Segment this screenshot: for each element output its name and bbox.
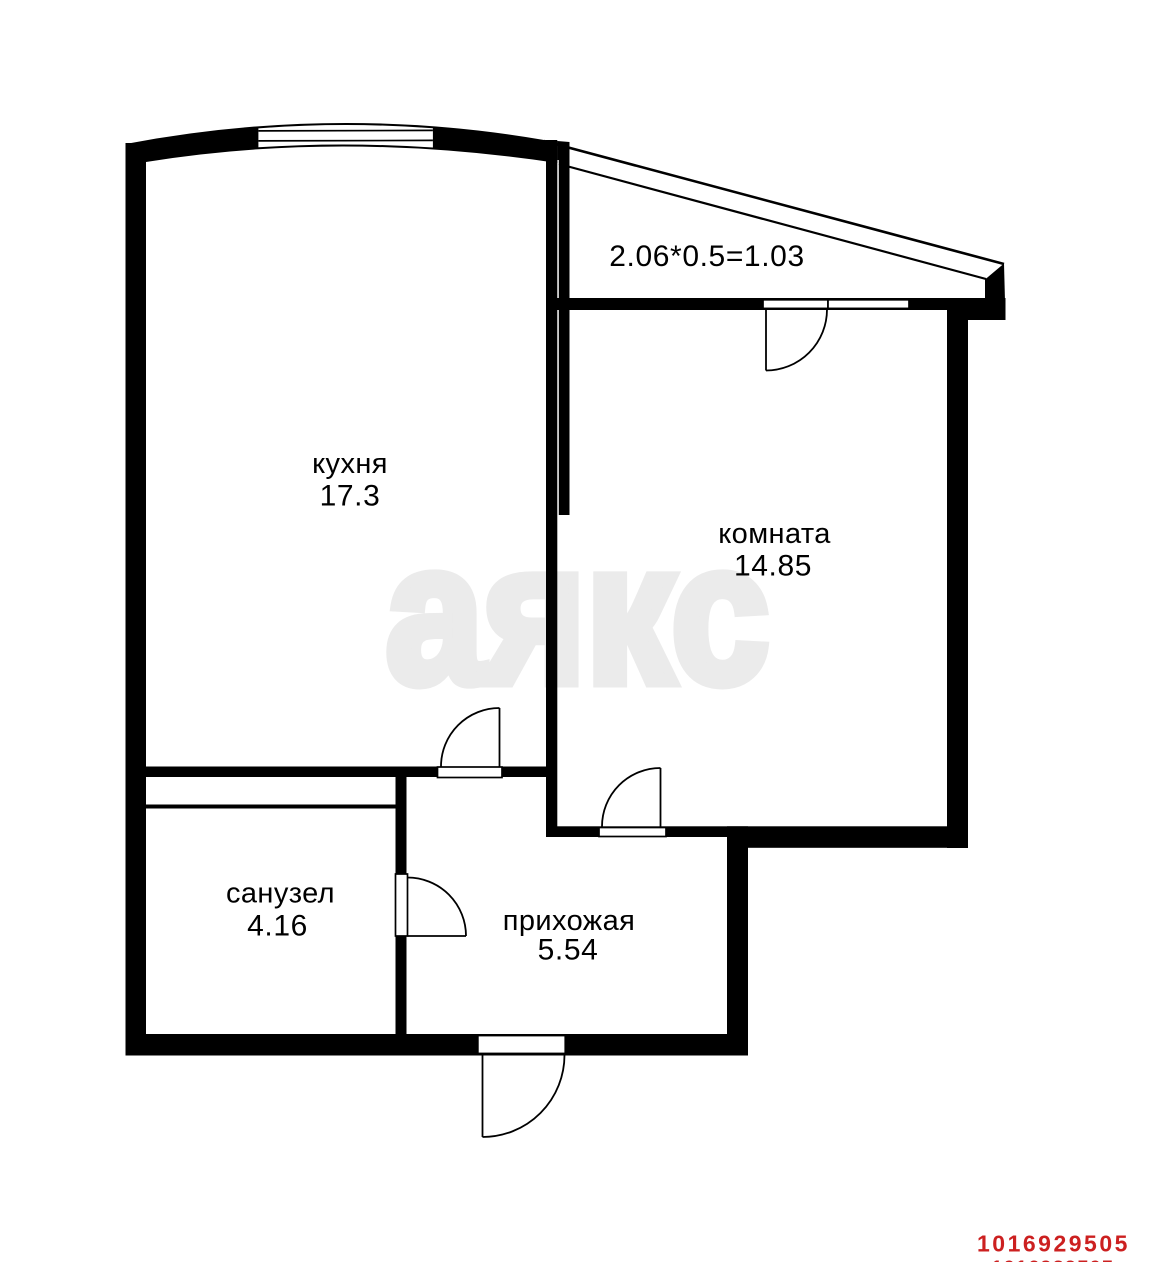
svg-text:санузел: санузел — [226, 878, 335, 910]
svg-text:2.06*0.5=1.03: 2.06*0.5=1.03 — [609, 240, 804, 273]
svg-text:1016929505: 1016929505 — [977, 1231, 1130, 1257]
svg-text:5.54: 5.54 — [538, 934, 599, 967]
svg-text:аякс: аякс — [386, 503, 769, 725]
svg-text:прихожая: прихожая — [503, 905, 635, 937]
svg-text:17.3: 17.3 — [320, 480, 381, 513]
svg-text:комната: комната — [718, 518, 831, 550]
svg-text:1016929505: 1016929505 — [991, 1257, 1114, 1262]
svg-text:14.85: 14.85 — [734, 550, 812, 583]
svg-text:4.16: 4.16 — [247, 910, 308, 943]
svg-text:кухня: кухня — [312, 448, 388, 480]
